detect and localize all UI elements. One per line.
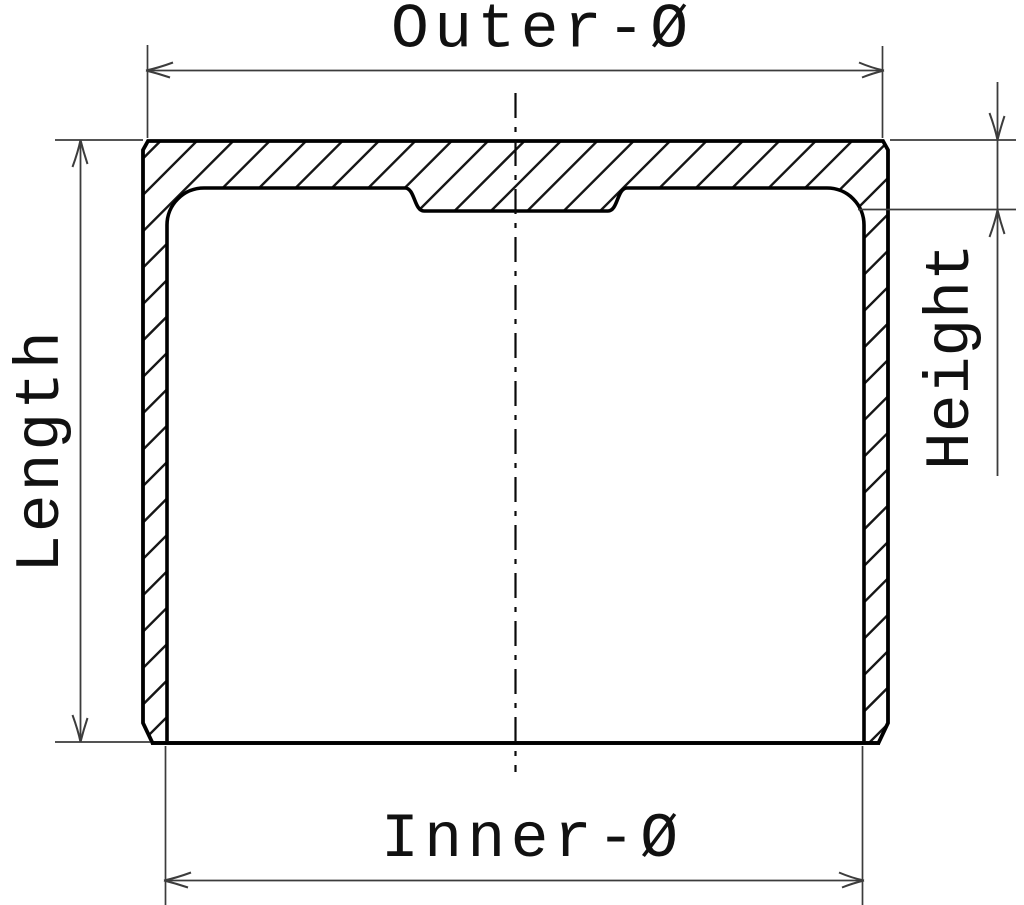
svg-text:Height: Height [916,243,987,470]
svg-text:Length: Length [6,328,77,573]
svg-text:Outer-Ø: Outer-Ø [391,0,693,66]
svg-text:Inner-Ø: Inner-Ø [381,804,683,875]
